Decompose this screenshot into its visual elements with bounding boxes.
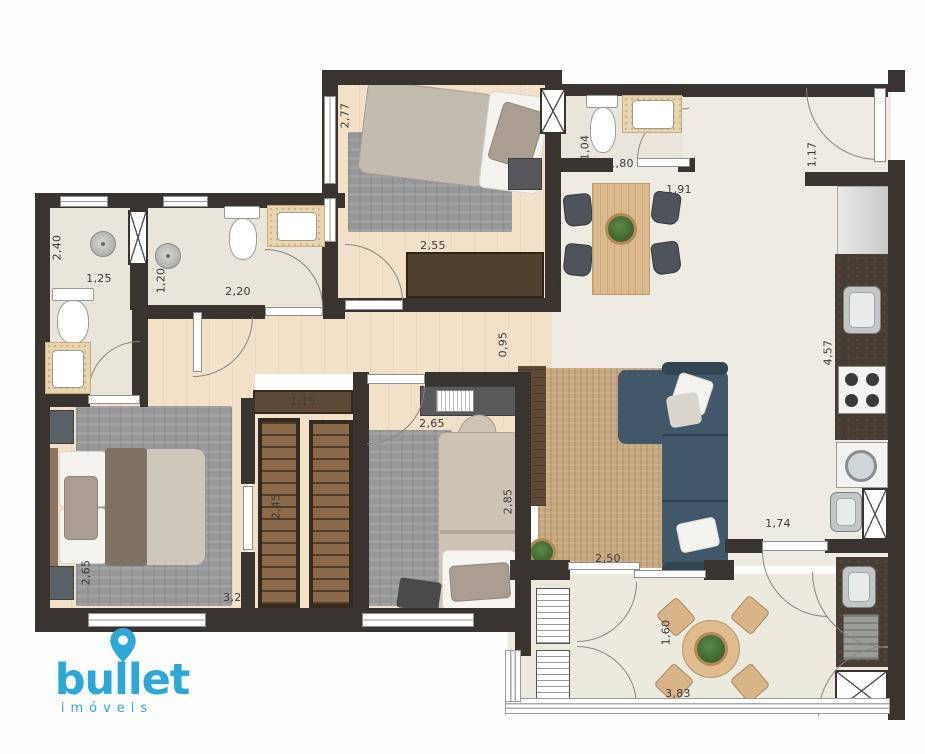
entrance-door-leaf (874, 88, 886, 162)
kitchen-sink (843, 286, 881, 334)
dimension-label: 2,50 (590, 552, 626, 565)
dimension-label: 2,65 (80, 555, 93, 591)
duct-shaft (862, 488, 888, 540)
blanket-fold (440, 530, 518, 534)
dimension-label: 2,77 (339, 98, 352, 134)
duct-shaft (540, 88, 566, 134)
nightstand (46, 410, 74, 444)
sink-basin (849, 292, 875, 328)
dimension-label: 1,04 (579, 130, 592, 166)
chair (562, 243, 593, 278)
wardrobe (309, 420, 353, 608)
duct-shaft (128, 210, 148, 265)
door-leaf (265, 307, 323, 316)
brand-tagline: imóveis (48, 701, 166, 716)
wall (725, 539, 763, 553)
dimension-label: 1,20 (155, 263, 168, 299)
window (324, 96, 336, 184)
bedroom1-dresser (406, 252, 544, 298)
headboard (50, 448, 58, 566)
brand-name: bullet (52, 655, 192, 705)
pillow (449, 562, 511, 602)
door-leaf (637, 158, 690, 167)
dimension-label: 2,40 (51, 230, 64, 266)
blanket-light (147, 449, 205, 565)
burner (845, 373, 858, 386)
balcony-glazing (505, 650, 521, 702)
dimension-label: 2,55 (415, 239, 451, 252)
wall (510, 560, 570, 580)
dimension-label: 1,91 (661, 183, 697, 196)
sink-basin (52, 350, 84, 388)
dining-chair (652, 192, 680, 224)
dimension-label: 2,85 (502, 484, 515, 520)
cooktop (838, 366, 886, 414)
wall (35, 393, 90, 407)
dimension-label: 1,65 (549, 267, 562, 303)
nightstand (46, 566, 74, 600)
plant-pot (697, 635, 725, 663)
dimension-label: 1,74 (760, 517, 796, 530)
balcony-glazing (505, 698, 890, 714)
window (324, 198, 336, 242)
shower-head-icon (90, 231, 116, 257)
wall (805, 172, 890, 186)
floor-plan: 2,77 2,55 1,04 1,80 1,91 1,17 2,40 1,25 … (0, 0, 925, 754)
window (362, 613, 474, 627)
sofa (616, 362, 730, 576)
sink-basin (277, 212, 317, 241)
dining-chair (564, 194, 592, 226)
laundry-tank (830, 492, 862, 532)
ac-condenser (536, 588, 570, 644)
plant-pot (608, 216, 634, 242)
dimension-label: 1,60 (660, 615, 673, 651)
washing-machine (836, 442, 888, 488)
wall (888, 70, 905, 92)
window (60, 196, 108, 207)
washer-door (845, 450, 877, 482)
chair (650, 240, 682, 276)
mattress (357, 79, 496, 188)
wall (241, 398, 255, 484)
dimension-label: 3,22 (218, 591, 254, 604)
door-leaf (345, 300, 403, 310)
dining-chair (652, 242, 680, 274)
dimension-label: 1,15 (285, 395, 321, 408)
door-leaf (193, 312, 202, 372)
door-leaf (367, 374, 425, 384)
fridge (837, 186, 889, 256)
dimension-label: 2,45 (270, 489, 283, 525)
wall (140, 393, 148, 407)
dimension-label: 4,57 (822, 335, 835, 371)
burner (866, 394, 879, 407)
blanket-dark (105, 448, 147, 566)
door-leaf (88, 395, 140, 404)
wall (323, 305, 345, 319)
burner (845, 394, 858, 407)
dimension-label: 0,95 (497, 327, 510, 363)
burner (866, 373, 879, 386)
pillow (665, 391, 702, 428)
sliding-door-leaf (634, 570, 706, 578)
dimension-label: 3,83 (660, 687, 696, 700)
sink-basin (632, 100, 674, 129)
dimension-label: 1,80 (603, 157, 639, 170)
wall (35, 193, 50, 632)
dimension-label: 1,17 (806, 137, 819, 173)
dimension-label: 2,20 (220, 285, 256, 298)
nightstand (508, 158, 542, 190)
toilet (590, 107, 616, 153)
dimension-label: 1,25 (81, 272, 117, 285)
door-leaf (762, 541, 828, 551)
toilet (229, 218, 257, 260)
wall (322, 70, 562, 85)
dimension-label: 2,65 (414, 417, 450, 430)
window (163, 196, 208, 207)
toilet (57, 300, 89, 344)
laptop (436, 390, 474, 412)
chair (562, 193, 593, 228)
sofa-armrest (662, 362, 728, 375)
wall (825, 539, 890, 553)
bedroom2-bed (438, 432, 520, 614)
dining-chair (564, 244, 592, 276)
wall (888, 160, 905, 720)
master-bed (50, 448, 206, 566)
pillow (64, 476, 98, 540)
wall (704, 560, 734, 580)
sink-basin (836, 498, 856, 526)
pocket-door (243, 486, 253, 550)
